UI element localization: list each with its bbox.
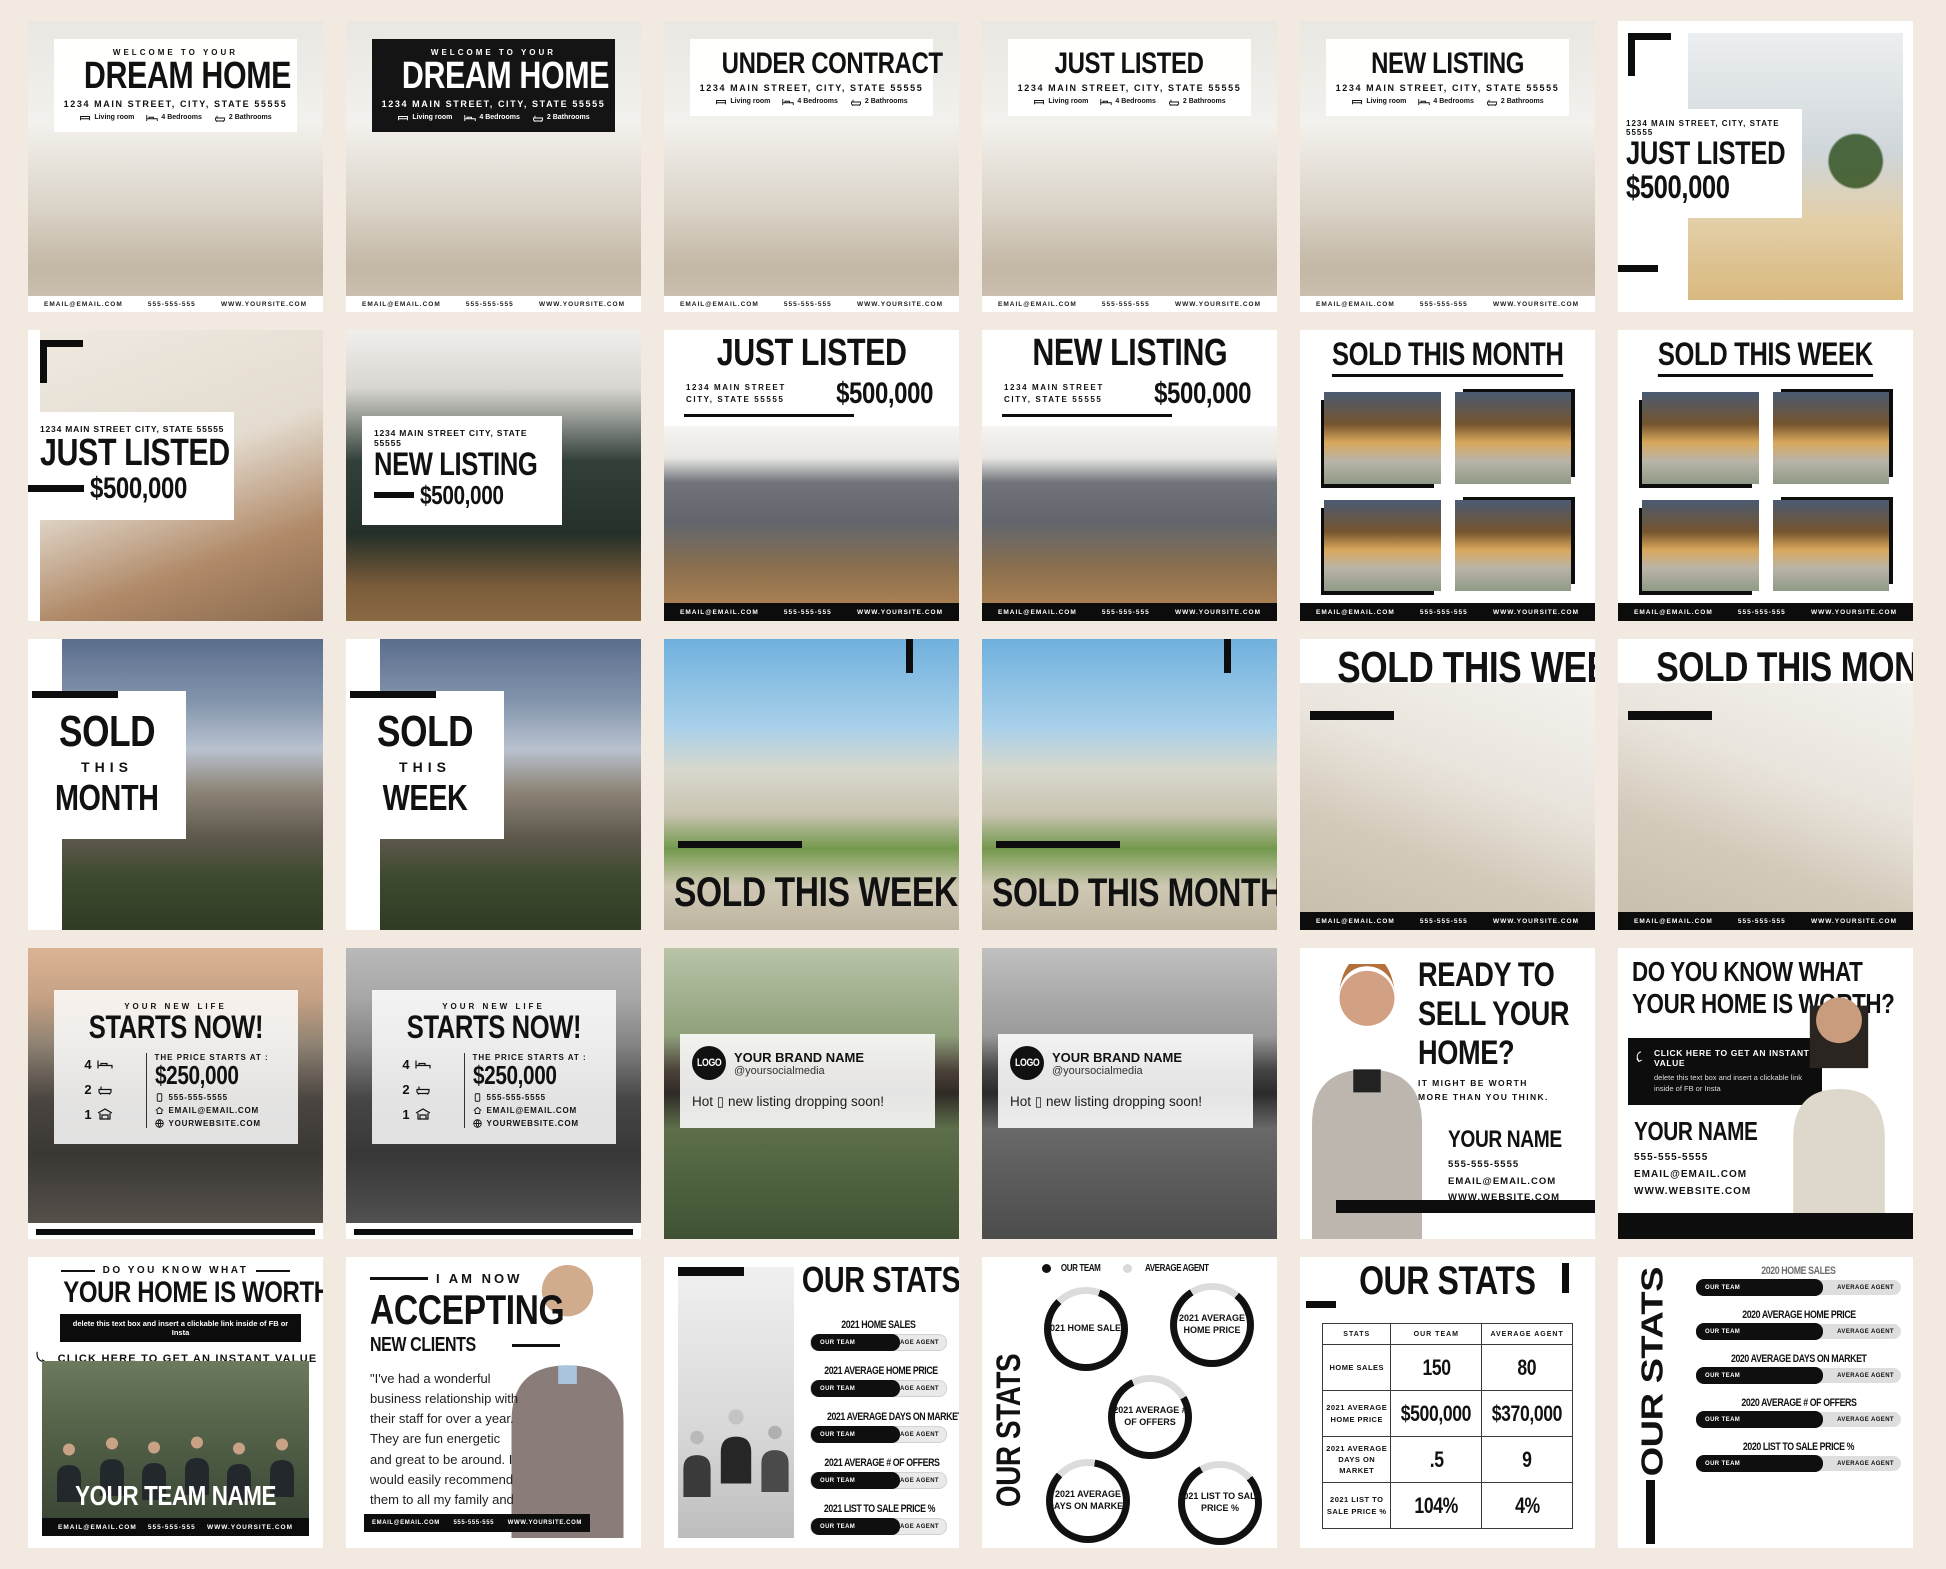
tile-home-worth-agent[interactable]: DO YOU KNOW WHAT YOUR HOME IS WORTH? CLI…	[1618, 948, 1913, 1239]
template-grid: WELCOME TO YOUR DREAM HOME 1234 MAIN STR…	[0, 0, 1946, 1569]
email-line: EMAIL@EMAIL.COM	[155, 1106, 292, 1115]
bed-icon	[1418, 98, 1430, 106]
contact-footer: EMAIL@EMAIL.COM 555-555-555 WWW.YOURSITE…	[1300, 912, 1595, 930]
feature-label: 4 Bedrooms	[1433, 98, 1473, 105]
stat-donut: 2021 AVERAGE # OF OFFERS	[1108, 1375, 1192, 1459]
bath-count: 2	[84, 1082, 112, 1097]
tile-our-stats-2020[interactable]: OUR STATS 2020 HOME SALES OUR TEAMAVERAG…	[1618, 1257, 1913, 1548]
stats-list: 2020 HOME SALES OUR TEAMAVERAGE AGENT 20…	[1696, 1265, 1901, 1485]
footer-site: WWW.YOURSITE.COM	[857, 609, 943, 616]
team-bar: OUR TEAM	[1696, 1279, 1823, 1296]
team-value: .5	[1391, 1437, 1482, 1483]
agent-bar-label: AVERAGE AGENT	[1837, 1456, 1894, 1471]
feature-label: Living room	[1048, 98, 1088, 105]
row-label: HOME SALES	[1323, 1345, 1391, 1391]
house-photo	[1642, 392, 1759, 484]
listing-card: WELCOME TO YOUR DREAM HOME 1234 MAIN STR…	[54, 39, 297, 132]
subtitle-dash	[512, 1344, 560, 1347]
footer-phone: 555-555-555	[1102, 609, 1150, 616]
sold-panel: SOLD THIS MONTH	[28, 691, 186, 839]
feature-label: 4 Bedrooms	[1115, 98, 1155, 105]
offer-card: YOUR NEW LIFE STARTS NOW! 4 2 1 THE PRIC…	[372, 990, 616, 1144]
price-contact: THE PRICE STARTS AT : $250,000 555-555-5…	[155, 1053, 292, 1128]
tile-home-worth-team[interactable]: DO YOU KNOW WHAT YOUR HOME IS WORTH? del…	[28, 1257, 323, 1548]
tile-just-listed-header[interactable]: JUST LISTED 1234 MAIN STREET CITY, STATE…	[664, 330, 959, 621]
header-title: JUST LISTED	[664, 330, 959, 373]
tile-our-stats-table[interactable]: OUR STATS STATS OUR TEAM AVERAGE AGENT H…	[1300, 1257, 1595, 1548]
stats-title: OUR STATS	[1300, 1257, 1595, 1304]
bed-icon	[1100, 98, 1112, 106]
globe-icon	[473, 1119, 482, 1128]
social-panel: LOGO YOUR BRAND NAME @yoursocialmedia Ho…	[998, 1034, 1253, 1128]
listing-card: UNDER CONTRACT 1234 MAIN STREET, CITY, S…	[690, 39, 933, 116]
tile-sold-week-top[interactable]: SOLD THIS WEEK EMAIL@EMAIL.COM 555-555-5…	[1300, 639, 1595, 930]
bath-icon	[97, 1084, 113, 1095]
title-dash	[996, 841, 1120, 848]
team-value: $500,000	[1391, 1391, 1482, 1437]
card-title: STARTS NOW!	[378, 1011, 610, 1045]
footer-phone: 555-555-555	[784, 301, 832, 308]
vertical-title: OUR STATS	[990, 1337, 1029, 1524]
vertical-title-dash	[1646, 1480, 1655, 1544]
stat-row: 2020 AVERAGE DAYS ON MARKET OUR TEAMAVER…	[1696, 1353, 1901, 1383]
room-counts: 4 2 1	[378, 1053, 456, 1128]
feature-living-room: Living room	[715, 98, 770, 106]
footer-site: WWW.YOURSITE.COM	[1493, 301, 1579, 308]
stat-bar: OUR TEAMAVERAGE AGENT	[810, 1334, 947, 1351]
panel-price-row: $500,000	[374, 482, 554, 509]
stat-row: 2020 HOME SALES OUR TEAMAVERAGE AGENT	[1696, 1265, 1901, 1295]
card-title: UNDER CONTRACT	[694, 48, 929, 80]
footer-email: EMAIL@EMAIL.COM	[58, 1524, 137, 1531]
social-panel: LOGO YOUR BRAND NAME @yoursocialmedia Ho…	[680, 1034, 935, 1128]
card-body: 4 2 1 THE PRICE STARTS AT : $250,000 555…	[60, 1053, 292, 1128]
eyebrow-dash-left	[61, 1270, 95, 1272]
bed-icon	[97, 1059, 113, 1070]
house-photo	[1773, 500, 1890, 592]
sofa-icon	[715, 98, 727, 106]
feature-label: 4 Bedrooms	[161, 114, 201, 121]
agent-bar-label: AVERAGE AGENT	[882, 1427, 939, 1442]
feature-living-room: Living room	[79, 114, 134, 122]
bath-icon	[850, 98, 862, 106]
agent-bar-label: AVERAGE AGENT	[1837, 1412, 1894, 1427]
team-value: 104%	[1391, 1483, 1482, 1529]
headline: YOUR HOME IS WORTH?	[28, 1276, 323, 1310]
row-label: 2021 LIST TO SALE PRICE %	[1323, 1483, 1391, 1529]
stat-bar: OUR TEAMAVERAGE AGENT	[1696, 1456, 1901, 1471]
top-right-tick	[1224, 639, 1231, 673]
house-photo	[1455, 392, 1572, 484]
contact-footer: EMAIL@EMAIL.COM 555-555-555 WWW.YOURSITE…	[982, 603, 1277, 621]
stats-list: 2021 HOME SALES OUR TEAMAVERAGE AGENT 20…	[810, 1319, 947, 1548]
tile-new-listing-header[interactable]: NEW LISTING 1234 MAIN STREET CITY, STATE…	[982, 330, 1277, 621]
agent-email: EMAIL@EMAIL.COM	[1448, 1174, 1590, 1191]
contact-footer: EMAIL@EMAIL.COM 555-555-555 WWW.YOURSITE…	[1618, 603, 1913, 621]
contact-footer: EMAIL@EMAIL.COM 555-555-555 WWW.YOURSITE…	[982, 296, 1277, 312]
panel-dash	[350, 691, 436, 698]
team-name: YOUR TEAM NAME	[42, 1480, 309, 1512]
contact-footer: EMAIL@EMAIL.COM 555-555-555 WWW.YOURSITE…	[664, 296, 959, 312]
brand-row: LOGO YOUR BRAND NAME @yoursocialmedia	[1010, 1046, 1241, 1080]
footer-email: EMAIL@EMAIL.COM	[1634, 918, 1713, 925]
frame-corner-top-left	[1628, 33, 1671, 76]
agent-photo	[1769, 989, 1909, 1239]
tile-brand-teaser-color[interactable]: LOGO YOUR BRAND NAME @yoursocialmedia Ho…	[664, 948, 959, 1239]
footer-phone: 555-555-555	[453, 1520, 494, 1526]
agent-bar-label: AVERAGE AGENT	[1837, 1324, 1894, 1339]
stat-bar: OUR TEAMAVERAGE AGENT	[1696, 1324, 1901, 1339]
price-panel: 1234 MAIN STREET CITY, STATE 55555 NEW L…	[362, 416, 562, 525]
sold-word: SOLD	[32, 707, 182, 757]
table-header-row: STATS OUR TEAM AVERAGE AGENT	[1323, 1324, 1573, 1345]
bath-icon	[214, 114, 226, 122]
stat-bar: OUR TEAMAVERAGE AGENT	[810, 1472, 947, 1489]
team-bar: OUR TEAM	[1696, 1411, 1823, 1428]
team-member	[680, 1388, 714, 1538]
house-photo	[1455, 500, 1572, 592]
agent-bar-label: AVERAGE AGENT	[882, 1335, 939, 1350]
phone-line: 555-555-5555	[155, 1093, 292, 1102]
sofa-icon	[397, 114, 409, 122]
legend-dot-gray	[1123, 1264, 1132, 1273]
divider	[464, 1053, 465, 1128]
agent-block: YOUR NAME 555-555-5555 EMAIL@EMAIL.COM W…	[1634, 1116, 1788, 1200]
frame-dash-bottom-left	[1618, 265, 1658, 272]
feature-living-room: Living room	[1351, 98, 1406, 106]
tile-starts-now-color[interactable]: YOUR NEW LIFE STARTS NOW! 4 2 1 THE PRIC…	[28, 948, 323, 1239]
brand-name: YOUR BRAND NAME	[734, 1050, 864, 1065]
feature-living-room: Living room	[397, 114, 452, 122]
brand-names: YOUR BRAND NAME @yoursocialmedia	[734, 1050, 864, 1077]
price-panel: 1234 MAIN STREET, CITY, STATE 55555 JUST…	[1618, 109, 1802, 218]
header-price: $500,000	[824, 378, 945, 410]
contact-footer: EMAIL@EMAIL.COM 555-555-555 WWW.YOURSITE…	[42, 1518, 309, 1536]
footer-phone: 555-555-555	[1102, 301, 1150, 308]
contact-footer: EMAIL@EMAIL.COM 555-555-555 WWW.YOURSITE…	[664, 603, 959, 621]
footer-site: WWW.YOURSITE.COM	[1175, 301, 1261, 308]
card-address: 1234 MAIN STREET, CITY, STATE 55555	[1012, 83, 1247, 93]
garage-count: 1	[402, 1107, 430, 1122]
agent-value: $370,000	[1482, 1391, 1573, 1437]
panel-address: 1234 MAIN STREET CITY, STATE 55555	[374, 428, 554, 448]
eyebrow-row: I AM NOW	[370, 1271, 613, 1286]
eyebrow-row: DO YOU KNOW WHAT	[28, 1257, 323, 1276]
feature-bathrooms: 2 Bathrooms	[1168, 98, 1226, 106]
stat-label: 2021 AVERAGE DAYS ON MARKET	[810, 1411, 947, 1423]
home-icon	[473, 1106, 482, 1115]
panel-dash	[32, 691, 118, 698]
stat-row: 2021 HOME SALES OUR TEAMAVERAGE AGENT	[810, 1319, 947, 1351]
team-member	[717, 1353, 755, 1538]
bath-icon	[1168, 98, 1180, 106]
footer-site: WWW.YOURSITE.COM	[1811, 918, 1897, 925]
photo-title: SOLD THIS MONTH	[992, 871, 1277, 916]
team-member	[758, 1378, 792, 1538]
brand-handle: @yoursocialmedia	[734, 1065, 864, 1077]
house-photo	[1324, 500, 1441, 592]
stat-bar: OUR TEAMAVERAGE AGENT	[1696, 1412, 1901, 1427]
agent-phone: 555-555-5555	[1448, 1157, 1590, 1174]
address-underline	[684, 414, 854, 417]
bath-icon	[415, 1084, 431, 1095]
stat-label: 2021 AVERAGE HOME PRICE	[810, 1365, 947, 1377]
tile-our-stats-donuts[interactable]: OUR TEAM AVERAGE AGENT OUR STATS 2021 HO…	[982, 1257, 1277, 1548]
tile-just-listed-price[interactable]: 1234 MAIN STREET, CITY, STATE 55555 JUST…	[1618, 21, 1913, 312]
table-row: 2021 AVERAGE HOME PRICE $500,000 $370,00…	[1323, 1391, 1573, 1437]
agent-bar-label: AVERAGE AGENT	[882, 1519, 939, 1534]
bed-count: 4	[402, 1057, 430, 1072]
this-word: THIS	[350, 759, 500, 775]
bath-icon	[532, 114, 544, 122]
offer-card: YOUR NEW LIFE STARTS NOW! 4 2 1 THE PRIC…	[54, 990, 298, 1144]
tile-under-contract[interactable]: UNDER CONTRACT 1234 MAIN STREET, CITY, S…	[664, 21, 959, 312]
header-stats: STATS	[1323, 1324, 1391, 1345]
footer-phone: 555-555-555	[148, 301, 196, 308]
title-dash	[678, 841, 802, 848]
tile-sold-week-stacked[interactable]: SOLD THIS WEEK	[346, 639, 641, 930]
header-address: 1234 MAIN STREET CITY, STATE 55555	[1004, 382, 1104, 406]
tile-just-listed-banner[interactable]: JUST LISTED 1234 MAIN STREET, CITY, STAT…	[982, 21, 1277, 312]
testimonial-text: "I've had a wonderful business relations…	[370, 1369, 520, 1530]
agent-contacts: 555-555-5555 EMAIL@EMAIL.COM WWW.WEBSITE…	[1634, 1149, 1788, 1200]
tile-sold-month-grid[interactable]: SOLD THIS MONTH EMAIL@EMAIL.COM 555-555-…	[1300, 330, 1595, 621]
stat-row: 2021 AVERAGE DAYS ON MARKET OUR TEAMAVER…	[810, 1411, 947, 1443]
table-row: 2021 LIST TO SALE PRICE % 104% 4%	[1323, 1483, 1573, 1529]
feature-bedrooms: 4 Bedrooms	[1418, 98, 1473, 106]
this-word: THIS	[32, 759, 182, 775]
address-line1: 1234 MAIN STREET	[686, 382, 786, 394]
card-body: 4 2 1 THE PRICE STARTS AT : $250,000 555…	[378, 1053, 610, 1128]
header-title: NEW LISTING	[982, 330, 1277, 373]
bottom-accent-bar	[1618, 1213, 1913, 1239]
stat-row: 2020 AVERAGE HOME PRICE OUR TEAMAVERAGE …	[1696, 1309, 1901, 1339]
logo-badge: LOGO	[1010, 1046, 1044, 1080]
footer-email: EMAIL@EMAIL.COM	[998, 609, 1077, 616]
address-underline	[1002, 414, 1172, 417]
stat-label: 2021 AVERAGE # OF OFFERS	[810, 1457, 947, 1469]
stat-bar: OUR TEAMAVERAGE AGENT	[1696, 1280, 1901, 1295]
footer-site: WWW.YOURSITE.COM	[539, 301, 625, 308]
bath-count: 2	[402, 1082, 430, 1097]
feature-bedrooms: 4 Bedrooms	[782, 98, 837, 106]
team-photo: YOUR TEAM NAME	[42, 1361, 309, 1518]
address-line2: CITY, STATE 55555	[686, 394, 786, 406]
agent-site: WWW.WEBSITE.COM	[1634, 1183, 1788, 1200]
tile-brand-teaser-gray[interactable]: LOGO YOUR BRAND NAME @yoursocialmedia Ho…	[982, 948, 1277, 1239]
stat-row: 2020 AVERAGE # OF OFFERS OUR TEAMAVERAGE…	[1696, 1397, 1901, 1427]
subtitle: NEW CLIENTS	[370, 1334, 476, 1357]
table-row: 2021 AVERAGE DAYS ON MARKET .5 9	[1323, 1437, 1573, 1483]
footer-email: EMAIL@EMAIL.COM	[1316, 301, 1395, 308]
tile-dream-home-light[interactable]: WELCOME TO YOUR DREAM HOME 1234 MAIN STR…	[28, 21, 323, 312]
footer-site: WWW.YOURSITE.COM	[1493, 609, 1579, 616]
card-title: NEW LISTING	[1330, 48, 1565, 80]
panel-price: $500,000	[90, 473, 187, 505]
footer-email: EMAIL@EMAIL.COM	[44, 301, 123, 308]
site-line: YOURWEBSITE.COM	[473, 1119, 610, 1128]
stat-row: 2021 AVERAGE HOME PRICE OUR TEAMAVERAGE …	[810, 1365, 947, 1397]
caption-text: Hot ▯ new listing dropping soon!	[692, 1094, 923, 1110]
photo-title: SOLD THIS WEEK	[674, 868, 959, 916]
price: $250,000	[155, 1062, 292, 1089]
subtitle-row: NEW CLIENTS	[370, 1334, 613, 1357]
row-label: 2021 AVERAGE HOME PRICE	[1323, 1391, 1391, 1437]
brand-names: YOUR BRAND NAME @yoursocialmedia	[1052, 1050, 1182, 1077]
title-dash-left	[1306, 1301, 1336, 1308]
feature-bathrooms: 2 Bathrooms	[1486, 98, 1544, 106]
kitchen-photo	[664, 426, 959, 603]
feature-bathrooms: 2 Bathrooms	[214, 114, 272, 122]
garage-icon	[415, 1108, 431, 1120]
stat-bar: OUR TEAMAVERAGE AGENT	[810, 1426, 947, 1443]
headline: READY TO SELL YOUR HOME? IT MIGHT BE WOR…	[1418, 956, 1595, 1104]
footer-phone: 555-555-555	[784, 609, 832, 616]
stat-label: 2020 AVERAGE # OF OFFERS	[1696, 1397, 1901, 1409]
agent-phone: 555-555-5555	[1634, 1149, 1788, 1166]
photo-grid	[1642, 392, 1889, 591]
contact-footer: EMAIL@EMAIL.COM 555-555-555 WWW.YOURSITE…	[1300, 603, 1595, 621]
tile-sold-month-photo[interactable]: SOLD THIS MONTH	[982, 639, 1277, 930]
price: $250,000	[473, 1062, 610, 1089]
price-contact: THE PRICE STARTS AT : $250,000 555-555-5…	[473, 1053, 610, 1128]
photo-title: SOLD THIS MONTH	[1618, 643, 1913, 691]
listing-card: JUST LISTED 1234 MAIN STREET, CITY, STAT…	[1008, 39, 1251, 116]
feature-label: Living room	[412, 114, 452, 121]
agent-block: YOUR NAME 555-555-5555 EMAIL@EMAIL.COM W…	[1448, 1126, 1590, 1207]
header-band: NEW LISTING 1234 MAIN STREET CITY, STATE…	[982, 330, 1277, 426]
header-average-agent: AVERAGE AGENT	[1482, 1324, 1573, 1345]
eyebrow-dash-right	[256, 1270, 290, 1272]
tile-sold-week-grid[interactable]: SOLD THIS WEEK EMAIL@EMAIL.COM 555-555-5…	[1618, 330, 1913, 621]
phone-line: 555-555-5555	[473, 1093, 610, 1102]
contact-footer: EMAIL@EMAIL.COM 555-555-555 WWW.YOURSITE…	[346, 296, 641, 312]
panel-price: $500,000	[1626, 171, 1796, 205]
feature-label: 4 Bedrooms	[797, 98, 837, 105]
house-photo	[1773, 392, 1890, 484]
tile-dream-home-dark[interactable]: WELCOME TO YOUR DREAM HOME 1234 MAIN STR…	[346, 21, 641, 312]
legend: OUR TEAM AVERAGE AGENT	[982, 1257, 1277, 1274]
contact-footer: EMAIL@EMAIL.COM 555-555-555 WWW.YOURSITE…	[1618, 912, 1913, 930]
footer-email: EMAIL@EMAIL.COM	[1316, 609, 1395, 616]
contact-footer: EMAIL@EMAIL.COM 555-555-555 WWW.YOURSITE…	[28, 296, 323, 312]
feature-label: 2 Bathrooms	[1183, 98, 1226, 105]
sofa-icon	[1033, 98, 1045, 106]
eyebrow-dash	[370, 1277, 428, 1280]
footer-email: EMAIL@EMAIL.COM	[1634, 609, 1713, 616]
agent-bar-label: AVERAGE AGENT	[882, 1473, 939, 1488]
vertical-title: OUR STATS	[1632, 1267, 1675, 1476]
feature-label: Living room	[730, 98, 770, 105]
kitchen-photo	[982, 426, 1277, 603]
card-address: 1234 MAIN STREET, CITY, STATE 55555	[694, 83, 929, 93]
tile-new-listing-banner[interactable]: NEW LISTING 1234 MAIN STREET, CITY, STAT…	[1300, 21, 1595, 312]
curved-arrow-icon	[1634, 1050, 1648, 1066]
card-address: 1234 MAIN STREET, CITY, STATE 55555	[1330, 83, 1565, 93]
stat-label: 2020 AVERAGE HOME PRICE	[1696, 1309, 1901, 1321]
stat-donut: 2021 AVERAGE HOME PRICE	[1170, 1283, 1254, 1367]
panel-title: JUST LISTED	[1626, 137, 1796, 171]
footer-phone: 555-555-555	[1420, 301, 1468, 308]
feature-label: 4 Bedrooms	[479, 114, 519, 121]
tile-accepting-clients[interactable]: I AM NOW ACCEPTING NEW CLIENTS "I've had…	[346, 1257, 641, 1548]
eyebrow: DO YOU KNOW WHAT	[103, 1265, 249, 1276]
brand-handle: @yoursocialmedia	[1052, 1065, 1182, 1077]
listing-card: NEW LISTING 1234 MAIN STREET, CITY, STAT…	[1326, 39, 1569, 116]
tile-just-listed-interior[interactable]: 1234 MAIN STREET CITY, STATE 55555 JUST …	[28, 330, 323, 621]
feature-bedrooms: 4 Bedrooms	[146, 114, 201, 122]
garage-icon	[97, 1108, 113, 1120]
team-bar: OUR TEAM	[1696, 1455, 1823, 1472]
footer-phone: 555-555-555	[1738, 609, 1786, 616]
bed-icon	[146, 114, 158, 122]
agent-value: 4%	[1482, 1483, 1573, 1529]
logo-badge: LOGO	[692, 1046, 726, 1080]
stat-bar: OUR TEAMAVERAGE AGENT	[810, 1380, 947, 1397]
title-tick-right	[1562, 1263, 1569, 1293]
room-counts: 4 2 1	[60, 1053, 138, 1128]
feature-label: Living room	[94, 114, 134, 121]
caption-text: Hot ▯ new listing dropping soon!	[1010, 1094, 1241, 1110]
tile-sold-month-stacked[interactable]: SOLD THIS MONTH	[28, 639, 323, 930]
house-photo	[1324, 392, 1441, 484]
feature-label: 2 Bathrooms	[547, 114, 590, 121]
feature-label: 2 Bathrooms	[1501, 98, 1544, 105]
stat-label: 2020 AVERAGE DAYS ON MARKET	[1696, 1353, 1901, 1365]
stat-bar: OUR TEAMAVERAGE AGENT	[1696, 1368, 1901, 1383]
tile-sold-week-photo[interactable]: SOLD THIS WEEK	[664, 639, 959, 930]
grid-title: SOLD THIS MONTH	[1300, 330, 1595, 377]
footer-site: WWW.YOURSITE.COM	[1493, 918, 1579, 925]
bed-count: 4	[84, 1057, 112, 1072]
divider	[146, 1053, 147, 1128]
agent-name: YOUR NAME	[1448, 1126, 1590, 1154]
stat-row: 2021 AVERAGE # OF OFFERS OUR TEAMAVERAGE…	[810, 1457, 947, 1489]
note-pill[interactable]: delete this text box and insert a clicka…	[60, 1314, 301, 1342]
tile-starts-now-gray[interactable]: YOUR NEW LIFE STARTS NOW! 4 2 1 THE PRIC…	[346, 948, 641, 1239]
house-photo	[1642, 500, 1759, 592]
footer-phone: 555-555-555	[1420, 918, 1468, 925]
footer-phone: 555-555-555	[1420, 609, 1468, 616]
tile-ready-to-sell[interactable]: READY TO SELL YOUR HOME? IT MIGHT BE WOR…	[1300, 948, 1595, 1239]
grid-title: SOLD THIS WEEK	[1618, 330, 1913, 377]
photo-grid	[1324, 392, 1571, 591]
tile-our-stats-bars[interactable]: OUR STATS 2021 HOME SALES OUR TEAMAVERAG…	[664, 1257, 959, 1548]
agent-bar-label: AVERAGE AGENT	[1837, 1280, 1894, 1295]
card-title: JUST LISTED	[1012, 48, 1247, 80]
team-photo	[678, 1267, 794, 1538]
footer-email: EMAIL@EMAIL.COM	[680, 609, 759, 616]
panel-title: JUST LISTED	[40, 434, 226, 473]
legend-average-agent: AVERAGE AGENT	[1123, 1263, 1217, 1274]
feature-list: Living room 4 Bedrooms 2 Bathrooms	[694, 98, 929, 106]
sofa-icon	[79, 114, 91, 122]
bottom-accent-bar	[36, 1229, 315, 1235]
card-title: DREAM HOME	[376, 57, 611, 96]
photo-title: SOLD THIS WEEK	[1300, 643, 1595, 693]
feature-label: Living room	[1366, 98, 1406, 105]
card-title: STARTS NOW!	[60, 1011, 292, 1045]
tile-sold-month-top[interactable]: SOLD THIS MONTH EMAIL@EMAIL.COM 555-555-…	[1618, 639, 1913, 930]
tile-new-listing-interior[interactable]: 1234 MAIN STREET CITY, STATE 55555 NEW L…	[346, 330, 641, 621]
card-address: 1234 MAIN STREET, CITY, STATE 55555	[376, 99, 611, 109]
feature-bathrooms: 2 Bathrooms	[532, 114, 590, 122]
header-our-team: OUR TEAM	[1391, 1324, 1482, 1345]
price-dash	[28, 485, 84, 492]
sold-panel: SOLD THIS WEEK	[346, 691, 504, 839]
agent-name: YOUR NAME	[1634, 1116, 1788, 1147]
stats-title: OUR STATS	[782, 1259, 959, 1301]
